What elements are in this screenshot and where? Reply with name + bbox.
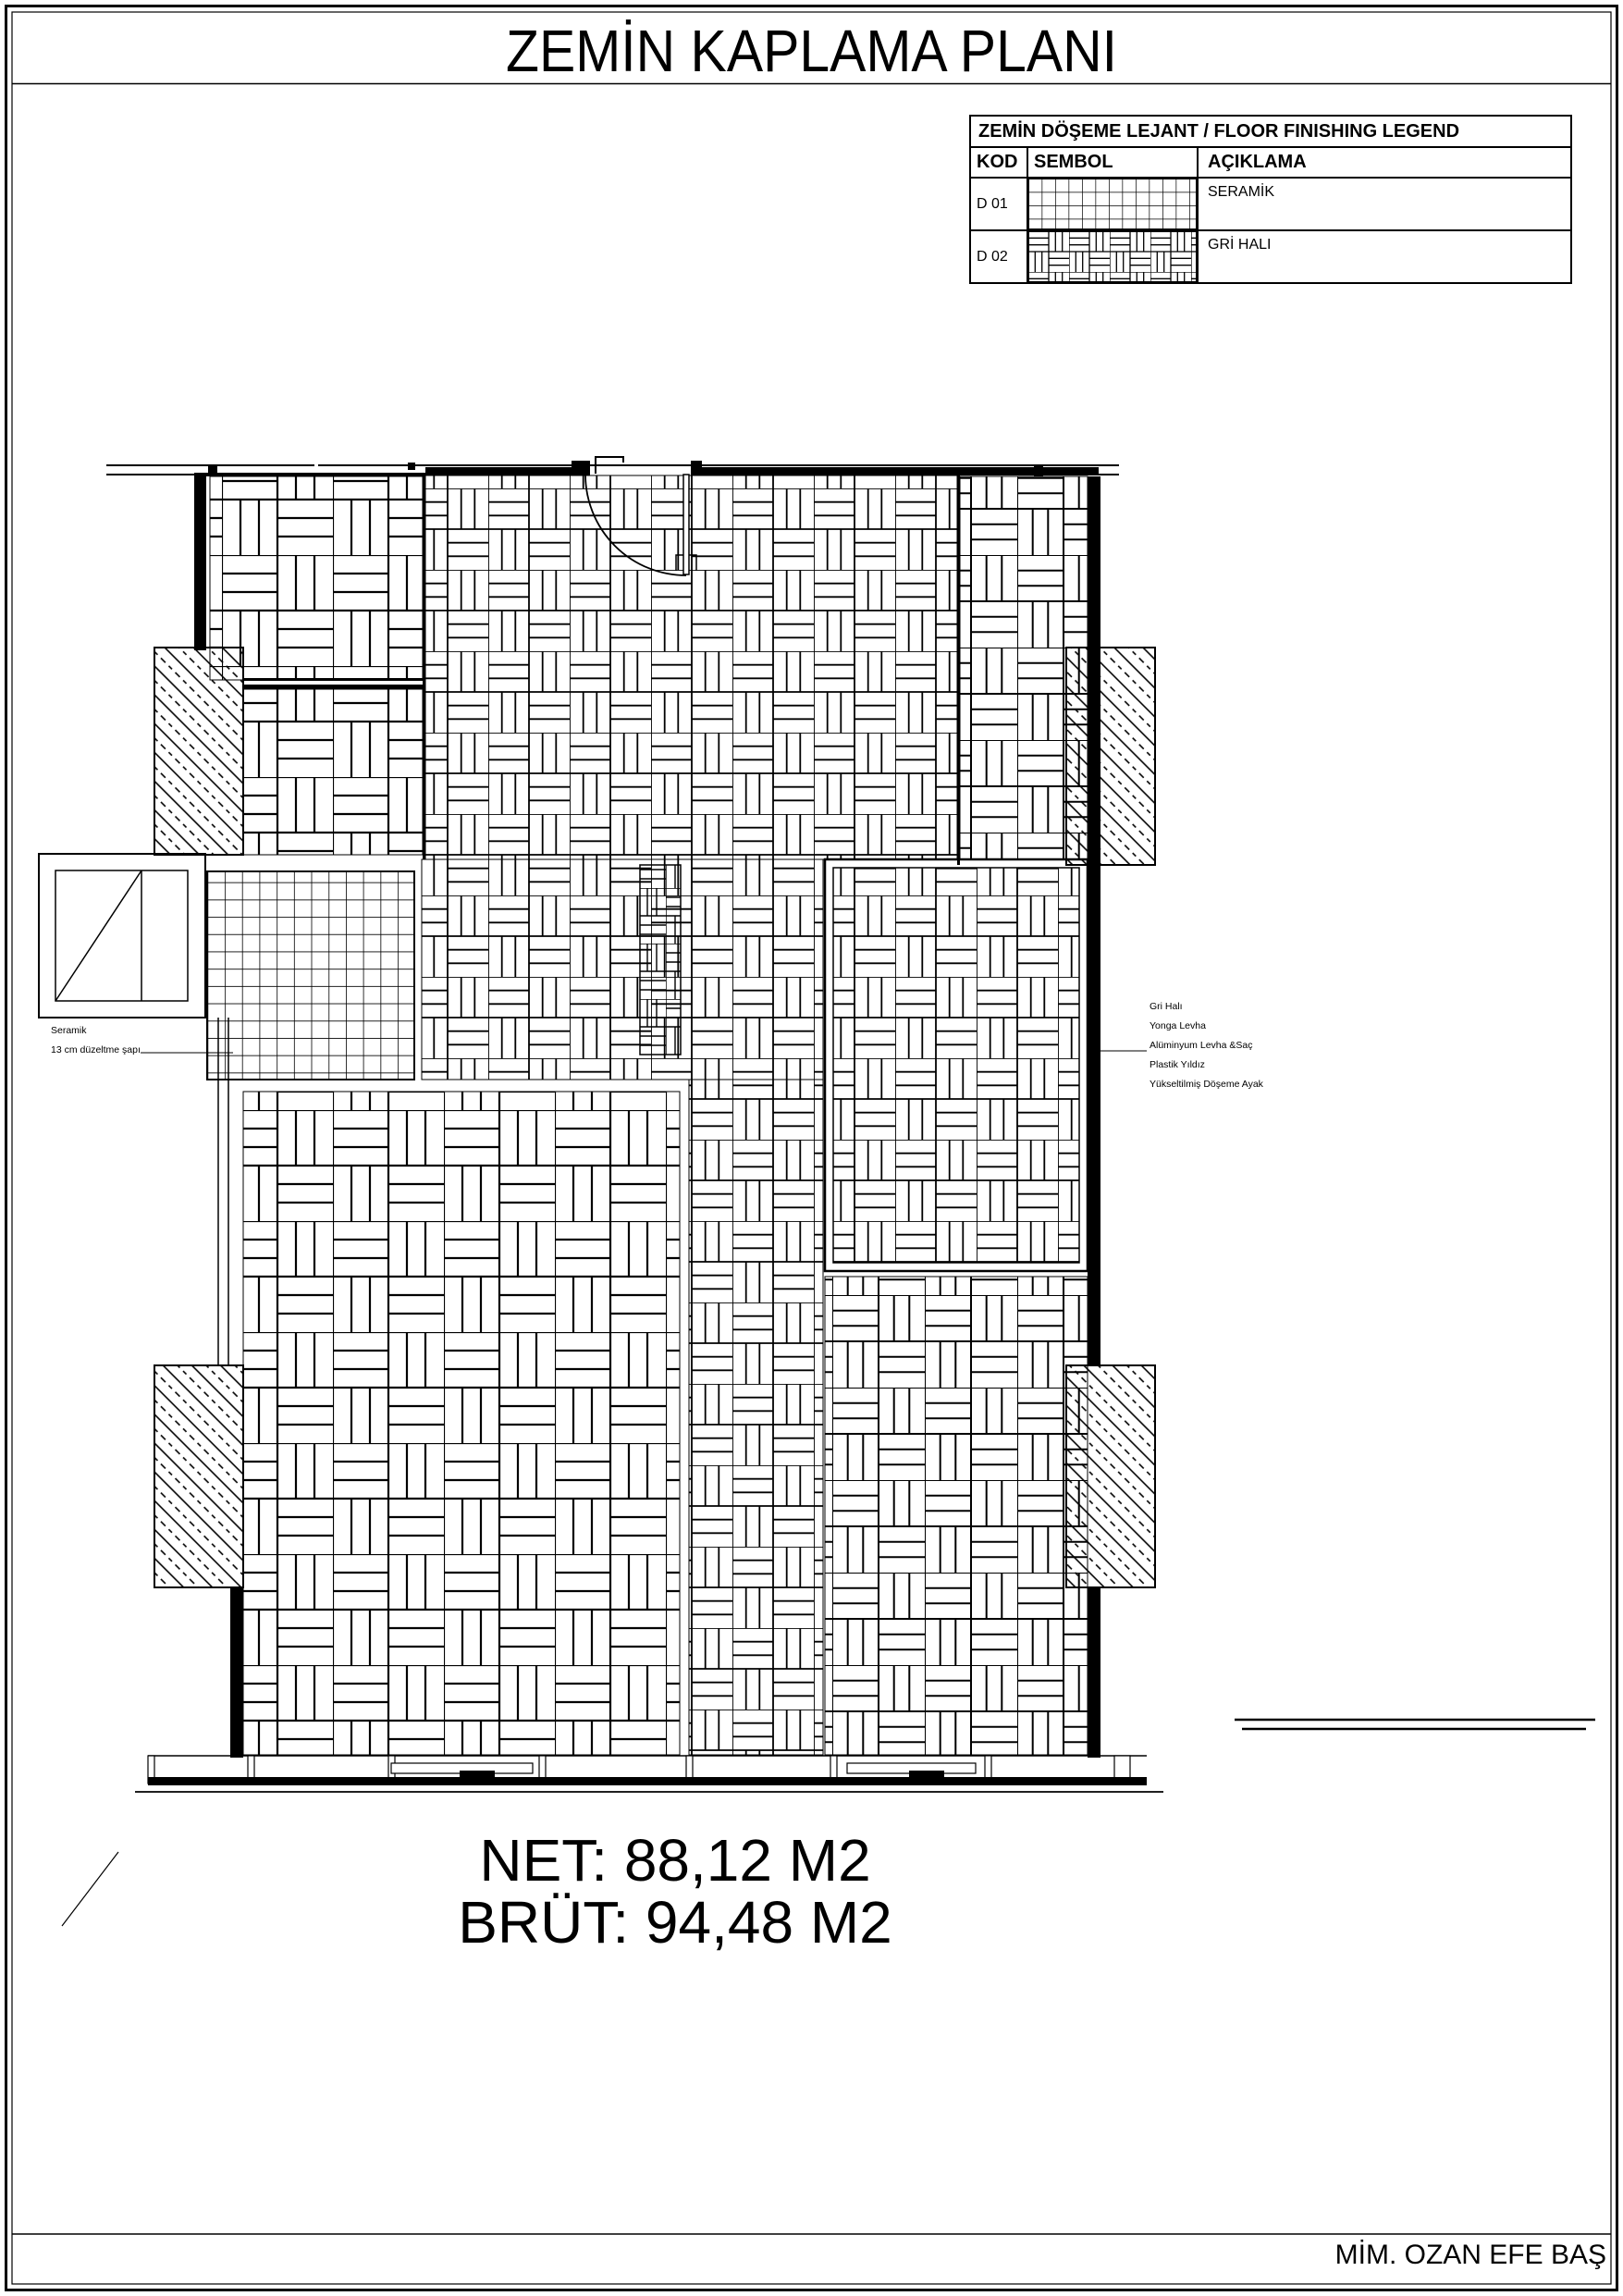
legend-code: D 02 — [971, 231, 1028, 282]
legend-symbol-cell — [1028, 231, 1199, 282]
carpet-area-center-lower — [422, 859, 823, 1080]
legend-table: ZEMİN DÖŞEME LEJANT / FLOOR FINISHING LE… — [969, 115, 1572, 284]
door-jamb-right — [691, 461, 702, 475]
legend-row-d02: D 02 GRİ HALI — [971, 229, 1570, 282]
column-bottom-left — [154, 1365, 243, 1587]
carpet-area-mid-left — [243, 689, 423, 855]
net-area-text: NET: 88,12 M2 — [259, 1830, 1091, 1892]
door-leaf — [683, 475, 689, 574]
carpet-area-bottom-right — [825, 1277, 1088, 1755]
legend-header-kod: KOD — [971, 148, 1028, 177]
door-jamb-left — [572, 461, 590, 475]
area-figures: NET: 88,12 M2 BRÜT: 94,48 M2 — [259, 1830, 1091, 1954]
legend-description: GRİ HALI — [1199, 231, 1570, 282]
carpet-area-center — [425, 475, 957, 859]
basket-weave-swatch — [1028, 231, 1197, 282]
page-title: ZEMİN KAPLAMA PLANI — [65, 17, 1558, 85]
legend-title: ZEMİN DÖŞEME LEJANT / FLOOR FINISHING LE… — [971, 117, 1570, 148]
annotation-aluminyum: Alüminyum Levha &Saç — [1150, 1040, 1252, 1051]
carpet-strip-middle — [689, 1080, 823, 1755]
legend-code: D 01 — [971, 179, 1028, 229]
ceramic-area — [207, 871, 414, 1080]
legend-header-aciklama: AÇIKLAMA — [1199, 148, 1570, 177]
floor-pattern-regions — [207, 475, 1088, 1755]
column-bottom-right — [1066, 1365, 1155, 1587]
annotation-gri-hali: Gri Halı — [1150, 1001, 1183, 1012]
legend-header-sembol: SEMBOL — [1028, 148, 1199, 177]
column-top-left — [154, 648, 243, 855]
section-rule — [1235, 1720, 1595, 1729]
legend-symbol-cell — [1028, 179, 1199, 229]
raised-floor-box — [833, 868, 1079, 1263]
drawing-sheet: ZEMİN KAPLAMA PLANI ZEMİN DÖŞEME LEJANT … — [0, 0, 1623, 2296]
annotation-sap: 13 cm düzeltme şapı — [51, 1044, 141, 1055]
break-line — [62, 1852, 118, 1926]
annotation-doseme-ayak: Yükseltilmiş Döşeme Ayak — [1150, 1079, 1263, 1090]
annotation-plastik-yildiz: Plastik Yıldız — [1150, 1059, 1205, 1070]
brut-area-text: BRÜT: 94,48 M2 — [259, 1892, 1091, 1954]
floor-panel-strip — [640, 865, 681, 1055]
ceramic-grid-swatch — [1028, 179, 1197, 229]
column-top-right — [1066, 648, 1155, 865]
legend-description: SERAMİK — [1199, 179, 1570, 229]
legend-header-row: KOD SEMBOL AÇIKLAMA — [971, 148, 1570, 179]
architect-name: MİM. OZAN EFE BAŞ — [1335, 2240, 1606, 2271]
window-base-line — [148, 1777, 1147, 1785]
legend-row-d01: D 01 SERAMİK — [971, 179, 1570, 229]
annotation-yonga-levha: Yonga Levha — [1150, 1020, 1206, 1031]
annotation-seramik: Seramik — [51, 1025, 87, 1036]
carpet-area-bottom-left — [243, 1092, 680, 1755]
shaft-symbol — [39, 854, 228, 1365]
